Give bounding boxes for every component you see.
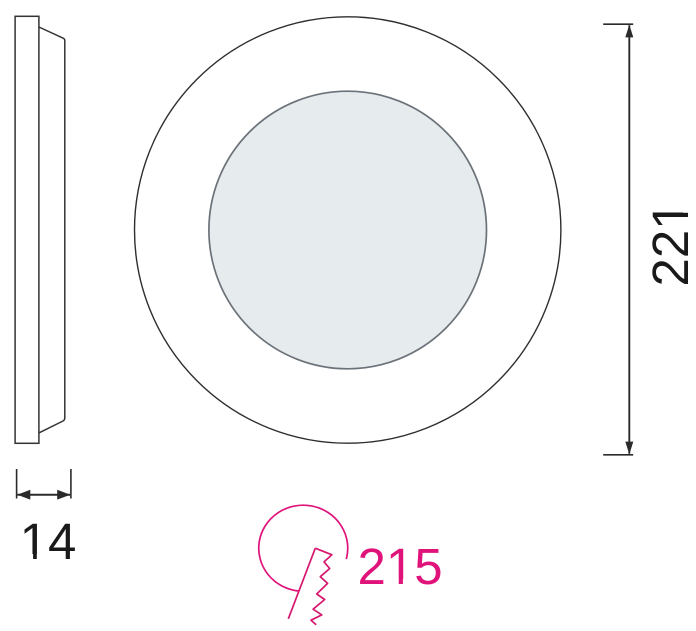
svg-text:215: 215 bbox=[358, 538, 443, 595]
svg-text:14: 14 bbox=[20, 513, 77, 570]
svg-text:221: 221 bbox=[642, 201, 696, 286]
